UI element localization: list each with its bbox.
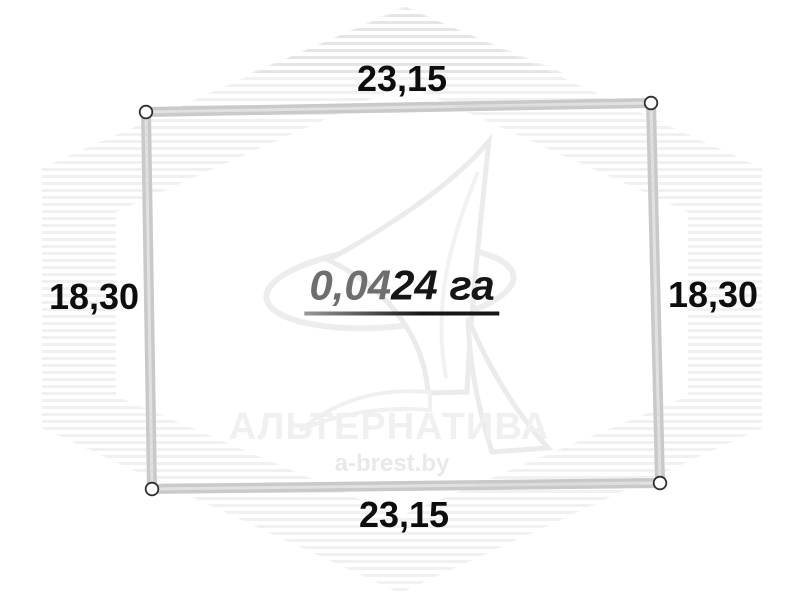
area-label: 0,0424 га [304, 265, 499, 316]
dimension-label-bottom: 23,15 [359, 497, 449, 533]
watermark-site: a-brest.by [335, 452, 450, 476]
area-label-prefix: 0,04 [309, 262, 391, 309]
dimension-label-right: 18,30 [668, 277, 758, 313]
watermark-brand: АЛЬТЕРНАТИВА [229, 408, 549, 446]
dimension-label-left: 18,30 [49, 279, 139, 315]
area-label-suffix: 24 га [391, 262, 495, 309]
plot-diagram: АЛЬТЕРНАТИВА a-brest.by 23,15 23,15 18,3… [0, 0, 800, 599]
dimension-label-top: 23,15 [357, 61, 447, 97]
